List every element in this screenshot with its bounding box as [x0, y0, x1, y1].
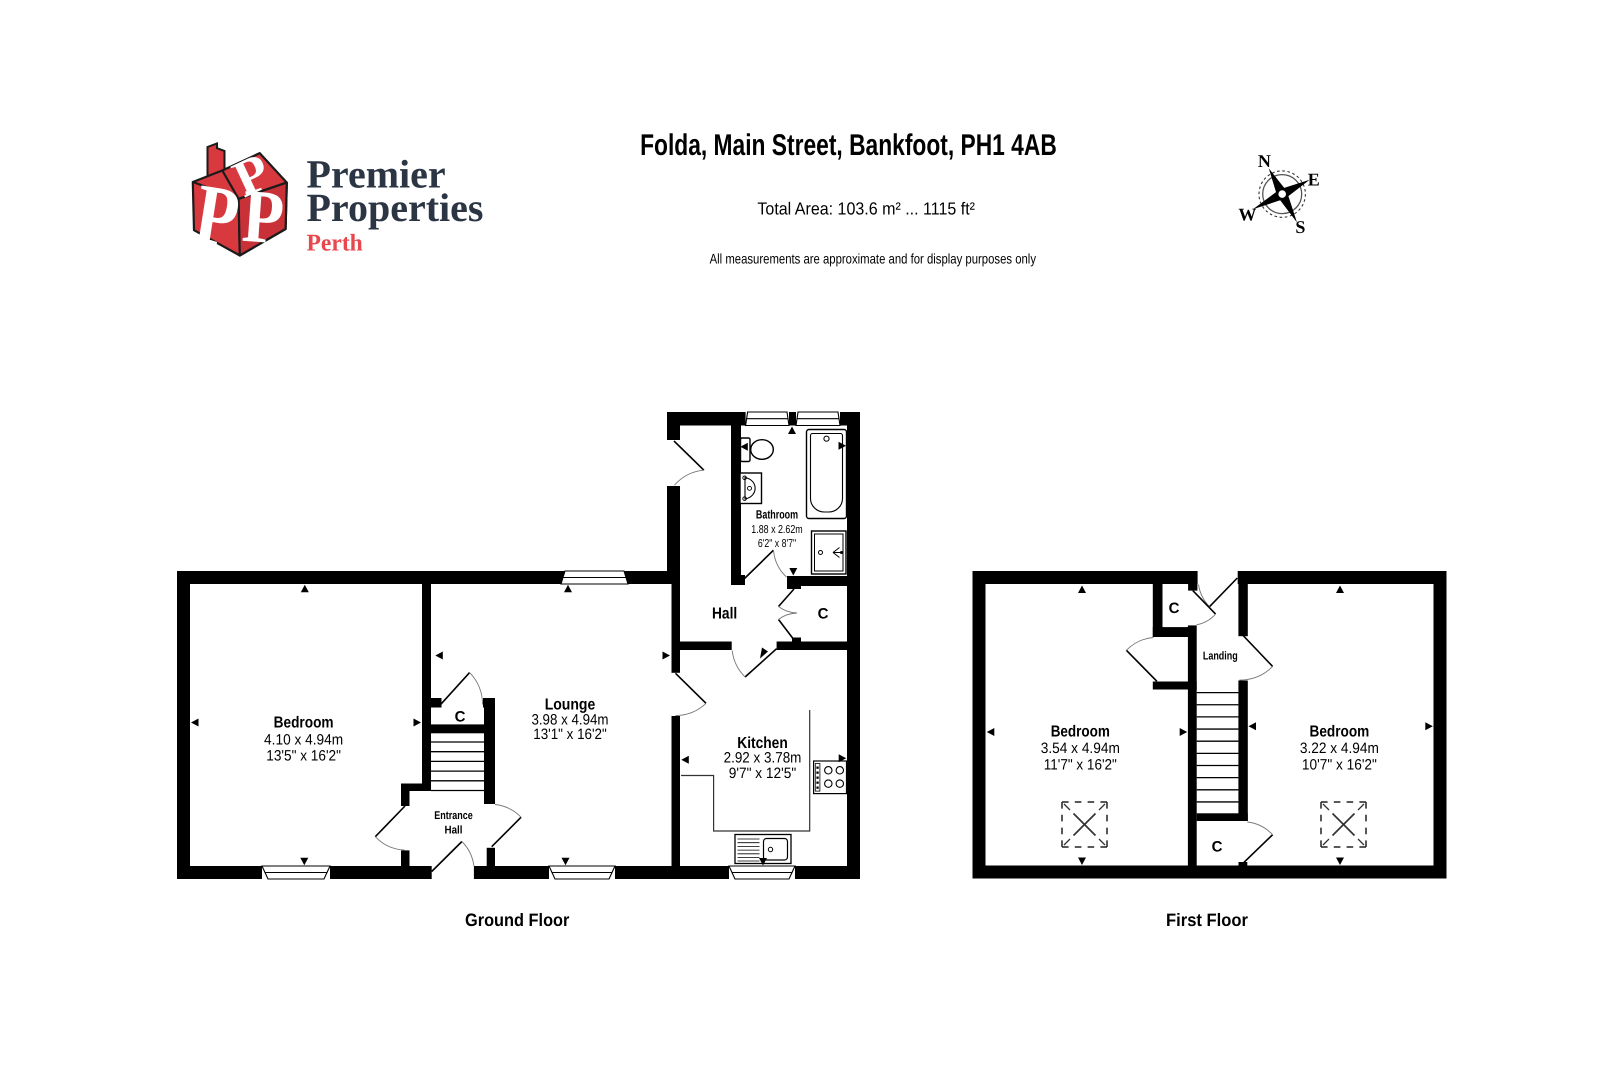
svg-text:2.92 x 3.78m: 2.92 x 3.78m [724, 749, 802, 766]
svg-text:First Floor: First Floor [1166, 910, 1248, 930]
svg-text:All measurements are approxima: All measurements are approximate and for… [710, 251, 1036, 267]
svg-text:Folda, Main Street, Bankfoot,: Folda, Main Street, Bankfoot, PH1 4AB [640, 129, 1057, 162]
svg-text:Bathroom: Bathroom [756, 507, 798, 521]
svg-text:Perth: Perth [307, 231, 363, 257]
svg-text:Entrance: Entrance [434, 810, 472, 822]
svg-text:S: S [1295, 217, 1305, 237]
svg-text:E: E [1308, 170, 1320, 190]
svg-text:C: C [1169, 600, 1180, 617]
svg-text:3.54 x 4.94m: 3.54 x 4.94m [1041, 740, 1120, 757]
svg-text:Hall: Hall [445, 824, 463, 836]
svg-text:9'7" x 12'5": 9'7" x 12'5" [729, 765, 796, 782]
svg-text:W: W [1238, 205, 1256, 225]
svg-text:3.22 x 4.94m: 3.22 x 4.94m [1300, 740, 1379, 757]
svg-text:4.10 x 4.94m: 4.10 x 4.94m [264, 731, 343, 748]
svg-text:10'7" x 16'2": 10'7" x 16'2" [1302, 756, 1377, 773]
svg-text:Ground Floor: Ground Floor [465, 910, 569, 930]
svg-text:C: C [818, 606, 829, 623]
svg-text:6'2" x 8'7": 6'2" x 8'7" [758, 538, 796, 550]
svg-text:Hall: Hall [712, 606, 737, 623]
svg-text:13'5" x 16'2": 13'5" x 16'2" [266, 748, 341, 765]
svg-text:P: P [240, 174, 287, 260]
svg-text:Landing: Landing [1203, 651, 1238, 663]
svg-text:Bedroom: Bedroom [1051, 724, 1110, 741]
svg-text:Total Area: 103.6 m² ... 1115: Total Area: 103.6 m² ... 1115 ft² [757, 199, 975, 219]
svg-text:N: N [1258, 151, 1271, 171]
svg-text:C: C [1212, 838, 1223, 855]
svg-text:Properties: Properties [307, 185, 484, 230]
svg-text:Bedroom: Bedroom [274, 715, 334, 732]
svg-text:13'1" x 16'2": 13'1" x 16'2" [533, 726, 607, 743]
svg-text:C: C [455, 708, 466, 725]
svg-text:Bedroom: Bedroom [1310, 724, 1370, 741]
svg-text:1.88 x 2.62m: 1.88 x 2.62m [751, 524, 802, 536]
svg-text:11'7" x 16'2": 11'7" x 16'2" [1044, 756, 1117, 773]
